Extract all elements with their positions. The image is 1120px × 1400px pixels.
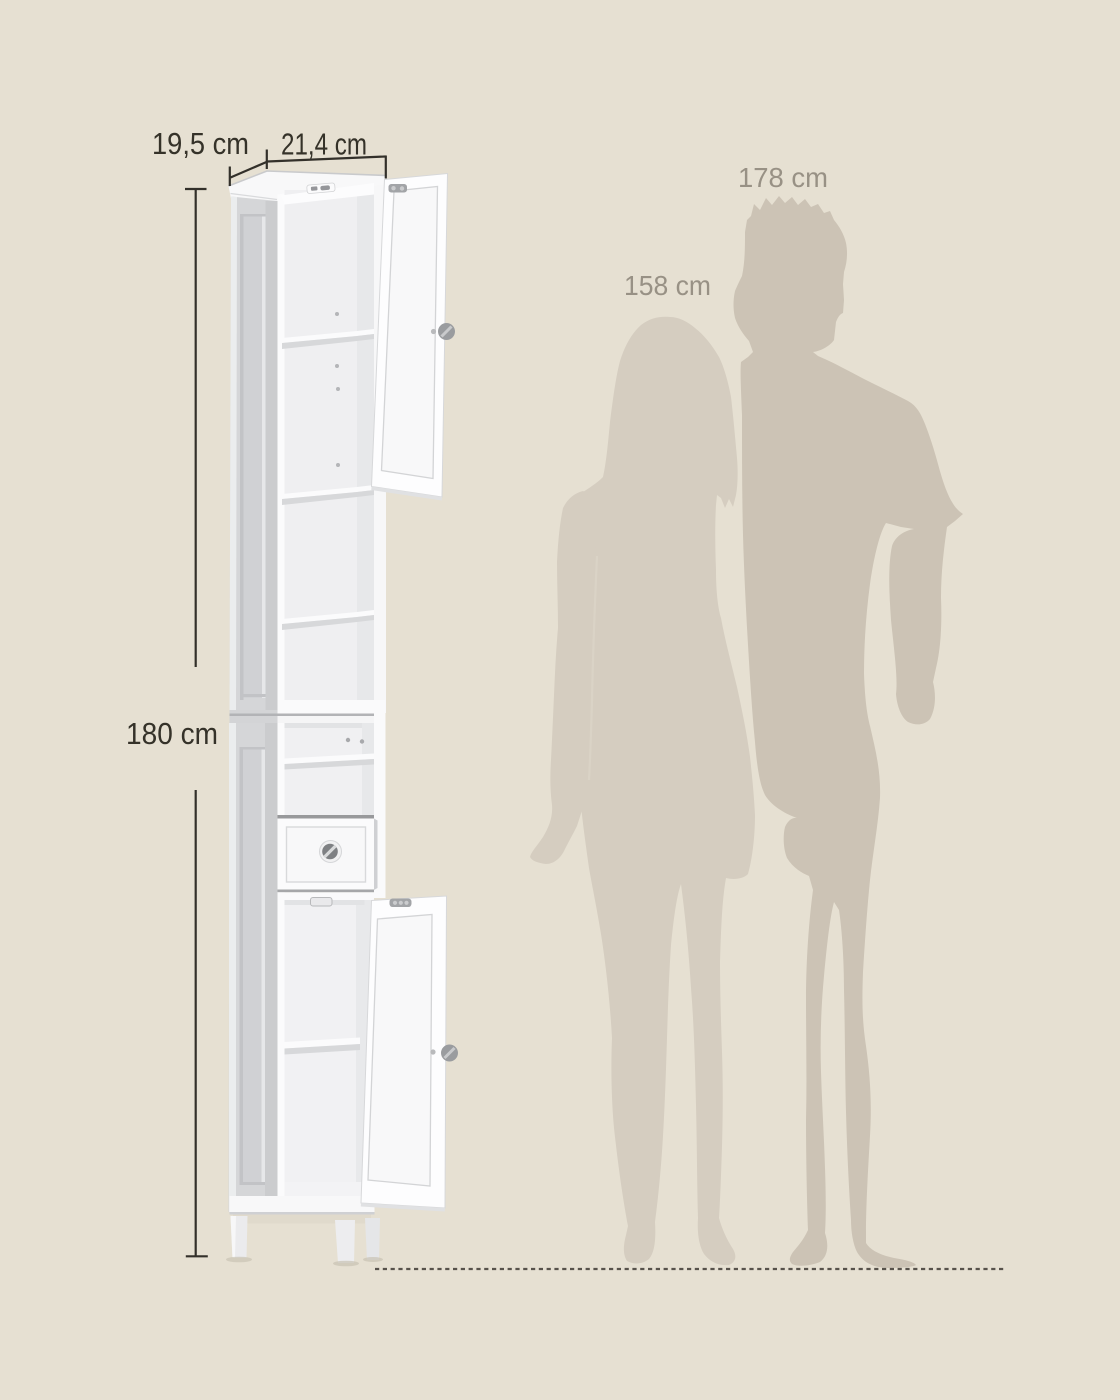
svg-text:158 cm: 158 cm xyxy=(624,270,711,301)
svg-text:180 cm: 180 cm xyxy=(126,716,218,751)
svg-text:178 cm: 178 cm xyxy=(738,162,828,193)
svg-text:19,5 cm: 19,5 cm xyxy=(152,126,249,161)
svg-text:21,4 cm: 21,4 cm xyxy=(281,127,367,162)
